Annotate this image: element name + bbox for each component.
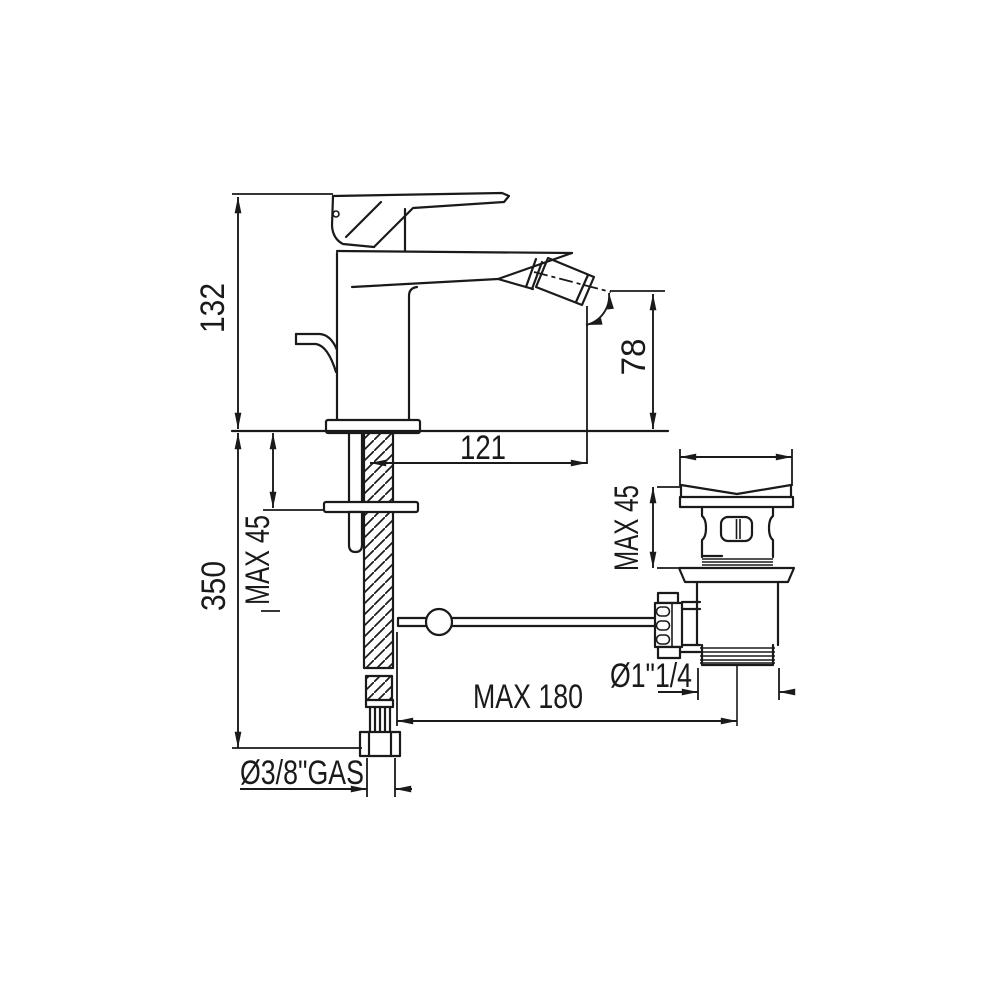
body-right-edge: [409, 287, 417, 420]
mounting-stud-lower: [349, 512, 362, 552]
dim-label-deck-faucet: MAX 45: [239, 515, 277, 605]
spout-swivel-arc: [586, 293, 609, 325]
drain-cap-dish: [681, 485, 791, 494]
technical-drawing: 132 350 MAX 45 121 78: [0, 0, 1000, 1000]
drain-cap-flange: [680, 497, 793, 507]
dim-label-spout-reach: 121: [460, 429, 506, 467]
drain-mid-flange: [679, 568, 794, 582]
ext-lines: [698, 668, 779, 700]
hose-nut: [360, 732, 400, 756]
dim-label-supply-length: 350: [195, 561, 233, 611]
drawing-canvas: 132 350 MAX 45 121 78: [0, 0, 1000, 1000]
dim-deck-thickness-drain: MAX 45: [608, 485, 681, 571]
spout-underside: [352, 279, 498, 287]
shank-hatch-upper: [364, 433, 393, 668]
drain-knurled-nut: [655, 593, 700, 658]
drain-lower-body: [697, 582, 778, 645]
ext-lines: [680, 449, 792, 486]
drain-upper-threads: [702, 559, 773, 568]
dim-label-rod-length: MAX 180: [473, 678, 583, 716]
dim-label-spout-height: 78: [615, 339, 653, 376]
faucet-view: [232, 193, 668, 756]
handle-pivot-detail: [333, 211, 339, 217]
faucet-handle: [332, 193, 509, 251]
body-top-plate: [337, 251, 572, 253]
dim-drain-cap-width: [680, 449, 792, 486]
dim-spout-reach: 121: [370, 306, 587, 467]
drain-window-divider: [737, 519, 741, 539]
dim-label-deck-drain: MAX 45: [608, 485, 646, 571]
knurl-top-step: [658, 593, 678, 603]
dim-supply-thread: Ø3/8"GAS: [240, 754, 412, 797]
dim-supply-length: 350: [195, 433, 362, 748]
drain-neck-right: [769, 507, 773, 557]
mounting-clamp-plate: [324, 502, 418, 512]
shank-hatch-lower: [366, 676, 392, 700]
dim-label-drain-thread: Ø1"1/4: [610, 657, 692, 695]
handle-outline: [333, 193, 509, 247]
hose-corrugation: [370, 707, 390, 732]
dim-label-total-height: 132: [194, 283, 232, 333]
dim-total-height: 132: [194, 194, 333, 429]
rod-knob: [426, 609, 452, 635]
supply-elbow-outer: [296, 334, 337, 350]
supply-elbow-inner: [296, 344, 336, 372]
dim-spout-height: 78: [610, 291, 665, 429]
nozzle-centerline: [534, 272, 611, 292]
dim-deck-thickness-faucet: MAX 45: [239, 433, 324, 611]
mounting-stud-upper: [349, 433, 362, 502]
dimensions: 132 350 MAX 45 121 78: [194, 194, 792, 797]
drain-neck-left: [702, 507, 706, 557]
pop-up-rod: [398, 609, 655, 635]
mounting-hardware: [324, 433, 418, 756]
faucet-body: [296, 251, 572, 433]
handle-inner-edge: [346, 202, 381, 237]
handle-left-edge: [332, 196, 374, 247]
dim-label-supply-thread: Ø3/8"GAS: [240, 754, 364, 792]
ext-lines: [657, 487, 681, 568]
ext-lines: [367, 758, 395, 797]
drain-tail-threads: [700, 648, 775, 663]
